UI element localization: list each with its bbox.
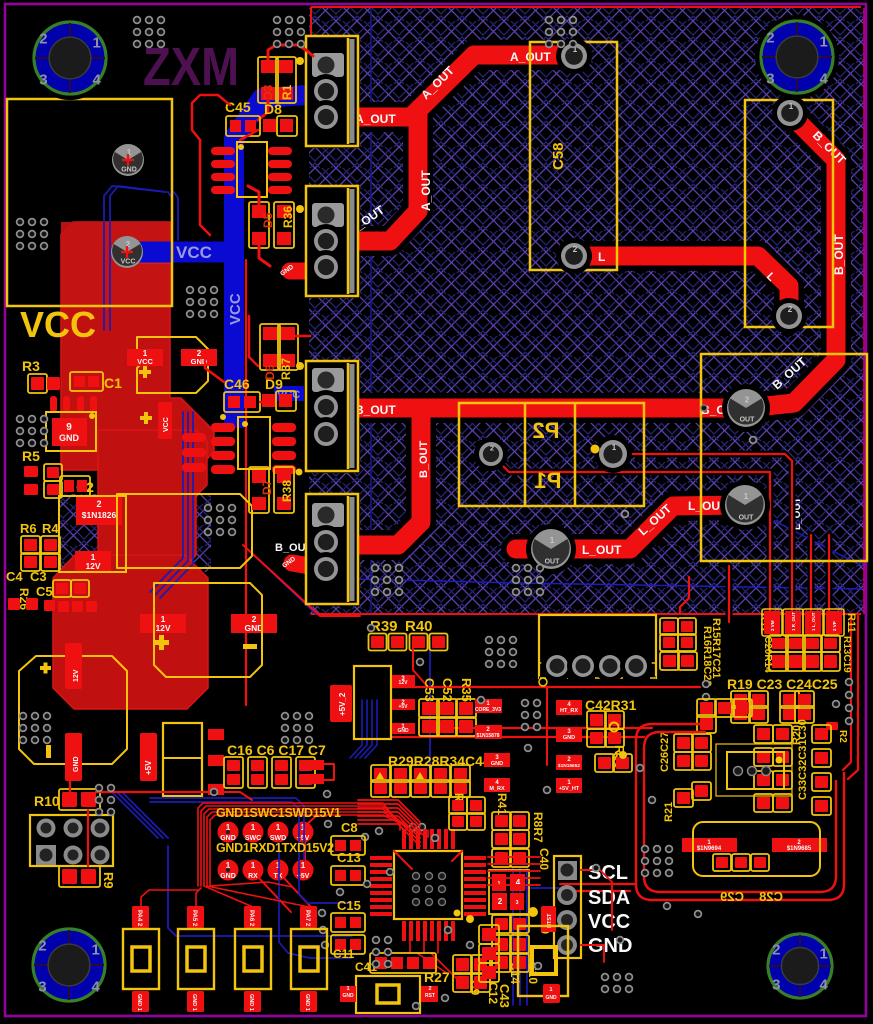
svg-text:R8R7: R8R7 — [531, 812, 545, 843]
svg-text:GND: GND — [545, 995, 557, 1001]
svg-text:C13: C13 — [337, 850, 361, 865]
svg-text:A_OUT: A_OUT — [355, 112, 396, 126]
svg-text:$1N15878: $1N15878 — [476, 733, 499, 739]
svg-text:12V: 12V — [85, 561, 100, 571]
svg-text:CORE_3V3: CORE_3V3 — [475, 707, 501, 713]
svg-text:R10: R10 — [34, 793, 60, 809]
svg-text:4: 4 — [92, 72, 101, 89]
svg-text:1: 1 — [612, 443, 617, 452]
svg-text:C33C32C31C30: C33C32C31C30 — [797, 719, 809, 800]
svg-text:R9: R9 — [101, 872, 116, 889]
svg-text:12V: 12V — [73, 669, 80, 682]
svg-text:HT_RX: HT_RX — [560, 708, 578, 714]
svg-text:$1N15652: $1N15652 — [558, 763, 580, 769]
svg-text:GND: GND — [121, 167, 137, 174]
svg-text:+5V: +5V — [398, 704, 408, 710]
svg-text:VCC: VCC — [588, 911, 630, 933]
svg-text:4: 4 — [820, 977, 829, 994]
svg-text:C40: C40 — [537, 848, 551, 870]
svg-text:OUT: OUT — [545, 558, 561, 565]
svg-text:9: 9 — [66, 422, 72, 433]
svg-text:GND: GND — [59, 433, 80, 443]
svg-text:12V: 12V — [155, 623, 170, 633]
svg-text:1 R_OUT: 1 R_OUT — [791, 612, 796, 631]
svg-text:VCC: VCC — [227, 293, 244, 325]
svg-text:+5V: +5V — [144, 760, 153, 775]
svg-text:PA7 2: PA7 2 — [304, 910, 310, 927]
svg-text:2: 2 — [498, 897, 503, 906]
svg-text:3: 3 — [516, 900, 519, 906]
svg-text:GND1RXD1TXD15V2: GND1RXD1TXD15V2 — [216, 841, 334, 855]
svg-text:C11: C11 — [333, 947, 355, 961]
svg-text:R3: R3 — [22, 358, 40, 374]
svg-text:GND 1: GND 1 — [136, 994, 142, 1011]
svg-text:C20R14: C20R14 — [762, 636, 773, 673]
svg-text:C43: C43 — [497, 984, 512, 1008]
svg-text:RX: RX — [248, 873, 258, 880]
svg-text:2: 2 — [490, 443, 494, 452]
svg-text:+5V_2: +5V_2 — [338, 692, 347, 716]
svg-text:GND: GND — [342, 993, 354, 999]
svg-text:2: 2 — [428, 986, 431, 992]
svg-text:C28: C28 — [759, 889, 783, 904]
svg-text:1: 1 — [276, 823, 281, 832]
svg-text:GND: GND — [245, 623, 264, 633]
svg-text:GND 1: GND 1 — [304, 994, 310, 1011]
svg-text:P2: P2 — [533, 418, 560, 443]
svg-text:1: 1 — [251, 861, 256, 870]
svg-text:2: 2 — [766, 29, 774, 46]
svg-text:$1N9685: $1N9685 — [787, 846, 812, 852]
svg-text:R27: R27 — [424, 969, 450, 985]
svg-text:2: 2 — [788, 305, 793, 314]
svg-text:VCC: VCC — [163, 417, 170, 432]
svg-text:C29: C29 — [720, 889, 744, 904]
svg-text:C8: C8 — [341, 820, 358, 835]
svg-text:2: 2 — [772, 941, 780, 958]
svg-text:B_OUT: B_OUT — [355, 403, 396, 417]
svg-text:D8: D8 — [264, 101, 282, 117]
svg-text:GND: GND — [491, 761, 503, 767]
svg-text:C1: C1 — [104, 375, 122, 391]
svg-text:$1N1826: $1N1826 — [82, 510, 117, 520]
svg-text:R16R18C22: R16R18C22 — [701, 626, 713, 687]
svg-text:R1: R1 — [280, 84, 294, 100]
svg-text:OUT: OUT — [740, 417, 756, 424]
svg-text:SDA: SDA — [588, 887, 630, 909]
svg-text:$1N9694: $1N9694 — [697, 846, 722, 852]
svg-text:GND1SWC1SWD15V1: GND1SWC1SWD15V1 — [216, 806, 341, 820]
svg-text:PA5 2: PA5 2 — [191, 910, 197, 927]
svg-text:VCC: VCC — [20, 304, 96, 345]
svg-text:2: 2 — [38, 937, 46, 954]
svg-text:RST: RST — [425, 993, 435, 999]
svg-text:A_OUT: A_OUT — [419, 170, 433, 211]
svg-text:VCC: VCC — [176, 243, 212, 262]
svg-text:D7: D7 — [260, 479, 274, 495]
svg-text:1: 1 — [91, 941, 99, 958]
svg-text:C4: C4 — [6, 569, 23, 584]
svg-text:1: 1 — [346, 986, 349, 992]
svg-text:1: 1 — [744, 492, 749, 501]
svg-text:VCC: VCC — [137, 357, 153, 366]
svg-text:R36: R36 — [281, 206, 295, 228]
svg-text:C26C27: C26C27 — [659, 732, 671, 772]
svg-text:2: 2 — [96, 499, 101, 509]
svg-text:R38: R38 — [280, 480, 294, 502]
svg-text:C16 C6 C17 C7: C16 C6 C17 C7 — [227, 742, 326, 758]
svg-text:D6: D6 — [263, 364, 277, 380]
svg-text:GND: GND — [588, 935, 632, 957]
svg-text:1: 1 — [498, 881, 501, 887]
svg-text:1: 1 — [251, 823, 256, 832]
svg-text:1: 1 — [819, 33, 827, 50]
svg-text:GND 1: GND 1 — [191, 994, 197, 1011]
svg-text:P1: P1 — [535, 468, 562, 493]
svg-text:R13C19: R13C19 — [841, 636, 852, 673]
svg-text:GND 1: GND 1 — [248, 994, 254, 1011]
svg-text:3: 3 — [39, 72, 47, 89]
svg-text:R6: R6 — [20, 521, 37, 536]
svg-text:R29R28R34C44: R29R28R34C44 — [388, 753, 491, 769]
svg-text:C3: C3 — [30, 569, 47, 584]
svg-text:4: 4 — [819, 71, 828, 88]
svg-text:1: 1 — [549, 987, 552, 993]
svg-text:2: 2 — [745, 395, 750, 404]
svg-text:3: 3 — [38, 979, 46, 996]
svg-text:B_OUT: B_OUT — [418, 440, 430, 478]
svg-text:GND: GND — [563, 735, 575, 741]
svg-text:R19 C23 C24C25: R19 C23 C24C25 — [727, 676, 838, 692]
svg-text:R37: R37 — [279, 358, 293, 380]
svg-text:1 L_OUT: 1 L_OUT — [811, 612, 816, 631]
svg-text:VCC: VCC — [121, 259, 136, 266]
svg-text:L_OUT: L_OUT — [582, 543, 622, 557]
svg-text:1: 1 — [789, 102, 794, 111]
svg-text:OUT: OUT — [739, 514, 755, 521]
svg-text:M_RX: M_RX — [489, 786, 505, 792]
svg-text:C45: C45 — [225, 99, 251, 115]
svg-text:C58: C58 — [550, 142, 567, 170]
svg-text:R40: R40 — [405, 618, 433, 635]
svg-text:PA6 2: PA6 2 — [248, 910, 254, 927]
svg-text:2: 2 — [39, 30, 47, 47]
svg-text:1: 1 — [301, 861, 306, 870]
svg-text:4: 4 — [91, 979, 100, 996]
svg-text:R11: R11 — [845, 613, 857, 633]
svg-text:R2: R2 — [837, 730, 848, 743]
svg-text:2 VP: 2 VP — [832, 621, 837, 631]
svg-text:12V: 12V — [399, 680, 409, 686]
svg-text:1: 1 — [550, 536, 555, 545]
svg-text:C5: C5 — [36, 584, 53, 599]
svg-text:+5V_HT: +5V_HT — [559, 786, 580, 792]
svg-text:R4: R4 — [42, 521, 59, 536]
svg-text:1: 1 — [820, 945, 828, 962]
svg-text:GND: GND — [220, 873, 236, 880]
svg-text:1: 1 — [92, 34, 100, 51]
svg-text:3: 3 — [772, 977, 780, 994]
svg-text:3: 3 — [766, 71, 774, 88]
svg-text:C15: C15 — [337, 898, 361, 913]
svg-text:GND: GND — [73, 756, 80, 772]
svg-text:L: L — [598, 250, 605, 264]
svg-text:R5: R5 — [22, 448, 40, 464]
svg-text:2 VM: 2 VM — [770, 620, 775, 631]
svg-text:GND: GND — [397, 728, 409, 734]
svg-text:PA4 2: PA4 2 — [136, 910, 142, 927]
svg-text:C46: C46 — [224, 376, 250, 392]
svg-text:D5: D5 — [261, 212, 275, 228]
svg-text:2: 2 — [573, 245, 578, 254]
